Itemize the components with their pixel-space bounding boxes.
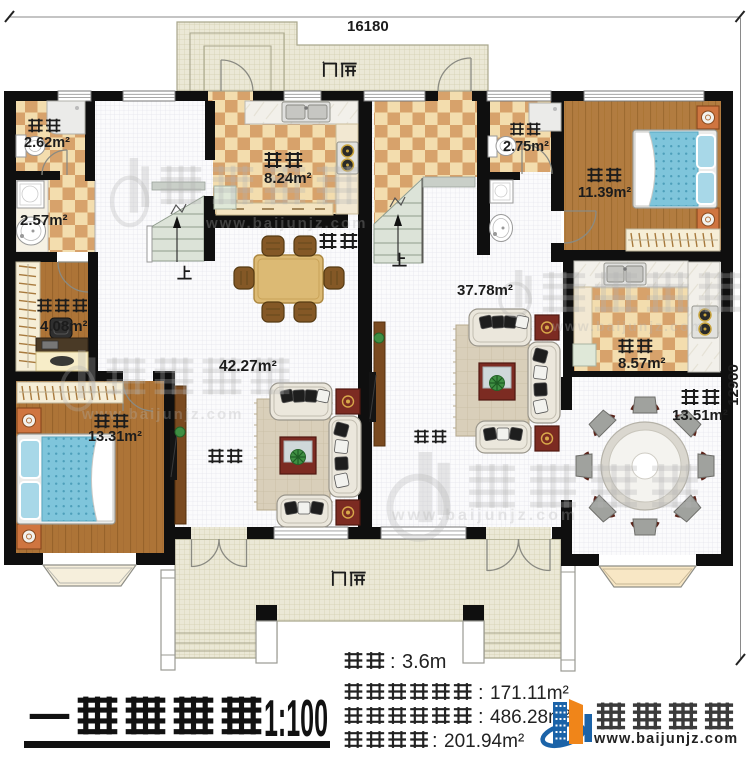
svg-text:8.24m²: 8.24m²	[264, 170, 312, 187]
svg-text:37.78m²: 37.78m²	[457, 282, 513, 299]
svg-text:8.57m²: 8.57m²	[618, 355, 666, 372]
svg-text::: :	[432, 730, 438, 752]
svg-text::: :	[478, 706, 484, 728]
svg-text:www.baijunjz.com: www.baijunjz.com	[551, 318, 705, 334]
svg-text:2.57m²: 2.57m²	[20, 212, 68, 229]
svg-text:www.baijunjz.com: www.baijunjz.com	[205, 215, 367, 232]
svg-text::: :	[390, 651, 396, 673]
svg-text:www.baijunjz.com: www.baijunjz.com	[391, 507, 578, 524]
svg-text:11.39m²: 11.39m²	[578, 185, 631, 201]
svg-text:www.baijunjz.com: www.baijunjz.com	[593, 731, 738, 747]
svg-text:13.51m²: 13.51m²	[672, 407, 728, 424]
svg-text:1:100: 1:100	[264, 690, 328, 748]
svg-text:16180: 16180	[347, 18, 389, 35]
svg-text:201.94m²: 201.94m²	[444, 731, 524, 752]
svg-text:2.75m²: 2.75m²	[503, 139, 549, 155]
svg-text:3.6m: 3.6m	[402, 651, 446, 673]
svg-text:4.08m²: 4.08m²	[40, 318, 88, 335]
svg-text:171.11m²: 171.11m²	[490, 683, 569, 704]
svg-text:2.62m²: 2.62m²	[24, 135, 70, 151]
svg-text:13.31m²: 13.31m²	[88, 429, 142, 445]
svg-text::: :	[478, 682, 484, 704]
svg-text:12900: 12900	[725, 364, 742, 406]
svg-text:42.27m²: 42.27m²	[219, 358, 277, 375]
